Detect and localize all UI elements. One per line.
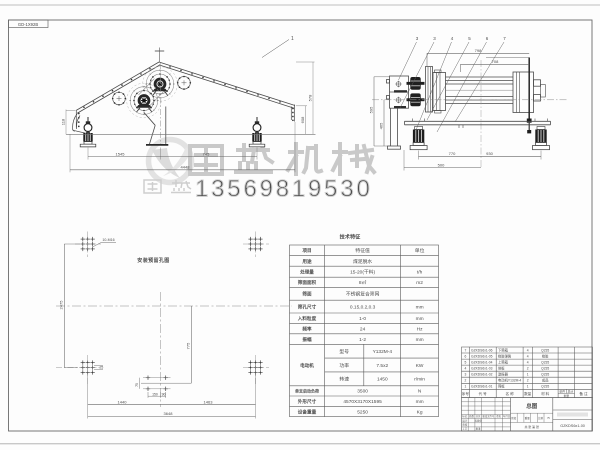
svg-text:745: 745 [203, 151, 210, 156]
svg-text:GZKDS6x1-03: GZKDS6x1-03 [471, 367, 493, 371]
svg-text:75: 75 [135, 383, 139, 387]
svg-text:2: 2 [527, 379, 529, 383]
svg-text:振幅: 振幅 [302, 336, 312, 343]
svg-text:成品: 成品 [542, 378, 549, 383]
svg-text:5250: 5250 [357, 409, 368, 415]
svg-text:mm: mm [416, 338, 424, 343]
svg-text:入料粒度: 入料粒度 [298, 315, 317, 322]
svg-text:4: 4 [527, 354, 529, 358]
svg-text:t/h: t/h [417, 270, 423, 276]
svg-text:重量: 重量 [563, 394, 569, 398]
svg-text:项目: 项目 [302, 247, 311, 254]
svg-text:Q235: Q235 [541, 360, 549, 364]
svg-text:608: 608 [300, 116, 305, 123]
svg-text:材 料: 材 料 [541, 391, 550, 396]
svg-text:2: 2 [464, 379, 466, 383]
svg-text:GZKDS6x1-02: GZKDS6x1-02 [471, 373, 493, 377]
svg-text:名 称: 名 称 [506, 391, 515, 396]
svg-text:1463: 1463 [204, 399, 214, 404]
svg-text:审核: 审核 [462, 423, 467, 427]
svg-text:单位: 单位 [415, 247, 425, 254]
svg-text:数量: 数量 [524, 391, 532, 396]
svg-text:4: 4 [464, 367, 466, 371]
svg-text:标记: 标记 [462, 414, 467, 418]
svg-text:重量: 重量 [525, 416, 530, 420]
svg-text:2475: 2475 [59, 300, 64, 310]
svg-text:10-M16: 10-M16 [102, 238, 114, 242]
svg-text:m2: m2 [416, 280, 423, 286]
svg-text:578: 578 [308, 94, 313, 101]
svg-text:GD-1X92B: GD-1X92B [18, 22, 38, 27]
svg-text:型号: 型号 [339, 348, 349, 355]
svg-text:465: 465 [379, 122, 384, 129]
svg-text:708: 708 [492, 59, 499, 64]
svg-text:Kg: Kg [417, 409, 423, 415]
svg-text:1: 1 [464, 385, 466, 389]
svg-text:不锈钢复合筛网: 不锈钢复合筛网 [346, 291, 380, 298]
svg-text:GZKDS6x1-05: GZKDS6x1-05 [471, 354, 493, 358]
svg-text:设计: 设计 [462, 418, 467, 422]
svg-text:比例: 比例 [538, 416, 543, 420]
svg-text:共 张 第 张: 共 张 第 张 [524, 424, 539, 429]
svg-text:更改文件号: 更改文件号 [482, 414, 495, 418]
svg-text:1: 1 [527, 373, 529, 377]
svg-text:1-2: 1-2 [359, 337, 366, 343]
svg-text:KW: KW [416, 363, 424, 369]
svg-text:Q235: Q235 [541, 385, 549, 389]
svg-text:煤泥脱水: 煤泥脱水 [353, 258, 372, 265]
svg-text:转速: 转速 [339, 376, 349, 383]
svg-text:特征值: 特征值 [355, 247, 370, 254]
svg-text:功率: 功率 [339, 362, 349, 369]
svg-text:GZKDS6x1-01: GZKDS6x1-01 [471, 385, 493, 389]
svg-text:标准化: 标准化 [475, 418, 483, 422]
svg-text:770: 770 [449, 151, 456, 156]
svg-text:150: 150 [152, 392, 158, 396]
svg-text:13569819530: 13569819530 [195, 176, 373, 203]
svg-text:3: 3 [464, 373, 466, 377]
svg-text:GZKDS6x1-06: GZKDS6x1-06 [471, 348, 493, 352]
svg-text:分区: 分区 [476, 414, 481, 418]
svg-text:5: 5 [464, 360, 466, 364]
svg-text:8㎡: 8㎡ [359, 279, 367, 286]
svg-text:930: 930 [486, 151, 493, 156]
svg-text:筛面面积: 筛面面积 [298, 279, 317, 286]
svg-text:118: 118 [61, 118, 66, 125]
svg-text:筛孔尺寸: 筛孔尺寸 [298, 303, 317, 310]
svg-text:总图: 总图 [526, 402, 538, 410]
svg-text:电动机: 电动机 [300, 362, 314, 369]
svg-text:备 注: 备 注 [579, 391, 588, 396]
svg-text:r/min: r/min [414, 377, 425, 383]
svg-text:处数: 处数 [469, 414, 474, 418]
svg-text:4: 4 [527, 360, 529, 364]
svg-text:单支启动负荷: 单支启动负荷 [295, 388, 319, 394]
svg-text:775: 775 [186, 342, 191, 349]
svg-text:mm: mm [416, 400, 424, 405]
svg-text:设备重量: 设备重量 [298, 408, 317, 415]
svg-text:侧板: 侧板 [498, 366, 505, 371]
svg-text:90: 90 [162, 392, 166, 396]
svg-text:mm: mm [416, 305, 424, 310]
svg-text:处理量: 处理量 [299, 269, 314, 276]
svg-text:序号: 序号 [462, 391, 470, 396]
svg-text:筛框: 筛框 [498, 384, 505, 389]
svg-text:798: 798 [475, 48, 482, 53]
svg-text:批准: 批准 [476, 427, 481, 431]
svg-text:技术特征: 技术特征 [340, 233, 362, 241]
svg-text:频率: 频率 [302, 326, 312, 333]
svg-text:GZKDS6x1-04: GZKDS6x1-04 [471, 360, 493, 364]
svg-text:GZKDS6x1-00: GZKDS6x1-00 [560, 424, 585, 428]
svg-text:Q235: Q235 [541, 367, 549, 371]
svg-text:7: 7 [464, 348, 466, 352]
svg-text:1545: 1545 [116, 151, 126, 156]
svg-text:4: 4 [527, 348, 529, 352]
svg-text:阶段: 阶段 [511, 416, 516, 420]
svg-text:595: 595 [369, 106, 374, 113]
svg-text:外形尺寸: 外形尺寸 [298, 398, 317, 405]
svg-text:3648: 3648 [164, 411, 174, 416]
svg-text:Q235: Q235 [541, 348, 549, 352]
svg-text:1-0: 1-0 [359, 316, 366, 322]
svg-text:Y132M-4: Y132M-4 [373, 349, 393, 355]
svg-text:mm: mm [416, 317, 424, 322]
svg-text:15-20(干料): 15-20(干料) [350, 269, 375, 276]
svg-text:2: 2 [527, 367, 529, 371]
svg-text:用途: 用途 [302, 258, 312, 265]
svg-text:电动机Y132M-4: 电动机Y132M-4 [498, 378, 521, 383]
svg-text:4448: 4448 [181, 165, 191, 170]
svg-text:24: 24 [360, 327, 366, 333]
svg-text:橡胶弹簧: 橡胶弹簧 [498, 353, 512, 358]
svg-text:1450: 1450 [377, 377, 388, 383]
svg-text:0.15,0.2,0.3: 0.15,0.2,0.3 [350, 304, 376, 310]
svg-text:3500: 3500 [357, 389, 368, 395]
svg-text:6: 6 [464, 354, 466, 358]
svg-text:4570X3170X1595: 4570X3170X1595 [343, 399, 382, 405]
svg-text:500: 500 [438, 162, 445, 167]
svg-text:激振器: 激振器 [498, 372, 509, 377]
svg-text:25: 25 [100, 366, 104, 370]
svg-text:代 号: 代 号 [479, 391, 488, 396]
svg-text:7.5x2: 7.5x2 [376, 363, 388, 369]
svg-text:上筛箱: 上筛箱 [498, 359, 509, 364]
svg-text:筛面: 筛面 [302, 291, 312, 298]
svg-text:Q235: Q235 [541, 373, 549, 377]
svg-text:Hz: Hz [417, 327, 423, 333]
svg-text:安装预留孔图: 安装预留孔图 [137, 257, 169, 264]
svg-text:签名: 签名 [496, 414, 501, 418]
svg-text:橡胶: 橡胶 [542, 353, 549, 358]
svg-text:下筛箱: 下筛箱 [498, 347, 509, 352]
svg-text:N: N [418, 389, 422, 395]
svg-text:1440: 1440 [118, 399, 128, 404]
svg-text:工艺: 工艺 [462, 427, 467, 431]
svg-text:1: 1 [527, 385, 529, 389]
svg-text:年月日: 年月日 [503, 414, 510, 418]
svg-text:1: 1 [291, 36, 294, 42]
